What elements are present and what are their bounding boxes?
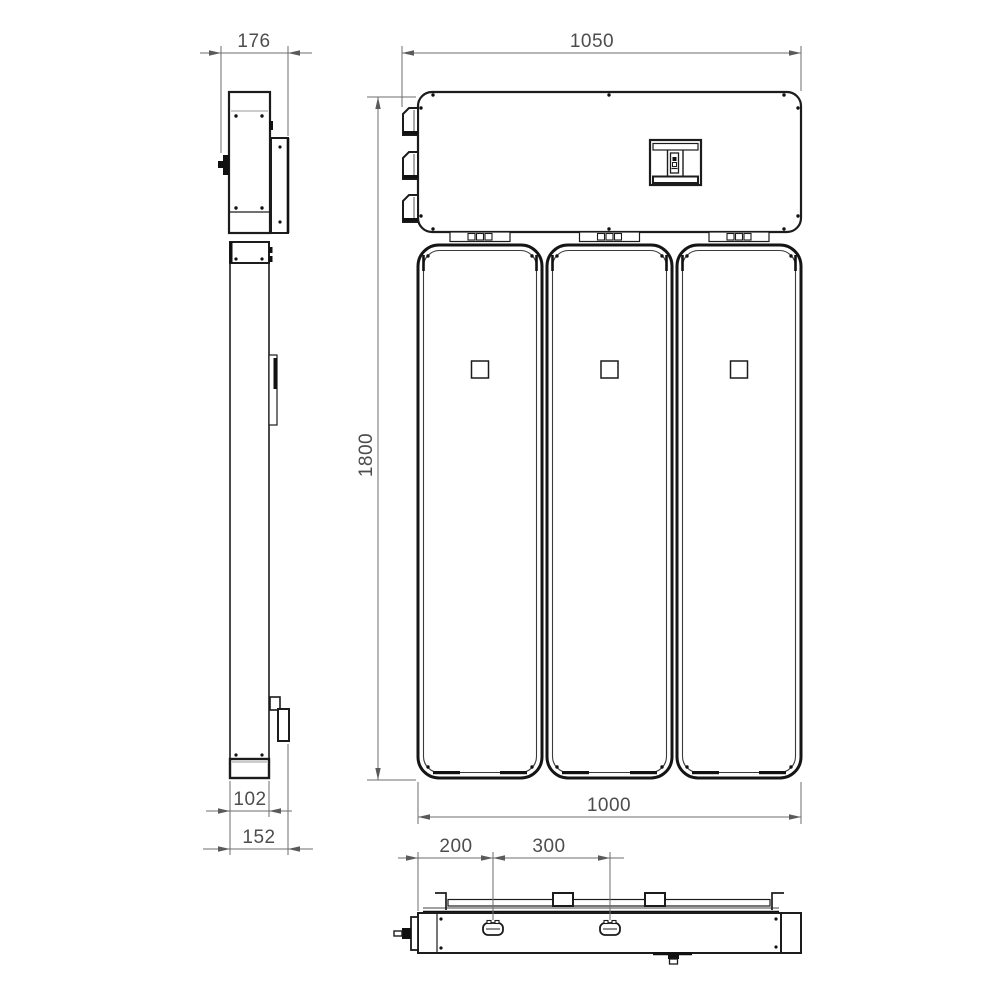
side-wall-plate [271, 138, 288, 233]
bottom-left-hook [435, 893, 446, 910]
dimension-200-300: 200 300 [398, 836, 624, 920]
dim-label-176: 176 [237, 31, 270, 52]
dim-label-200: 200 [439, 836, 472, 857]
front-control-housing [403, 92, 801, 232]
connector-3 [709, 232, 769, 242]
bottom-housing [394, 913, 801, 953]
side-panel-body [230, 263, 269, 759]
dim-label-300: 300 [532, 836, 565, 857]
heating-panel-3 [677, 245, 801, 778]
dim-label-1000: 1000 [587, 795, 631, 816]
heating-panel-1 [418, 245, 542, 778]
dim-label-152: 152 [242, 827, 275, 848]
drain-stub [653, 954, 692, 964]
hinge-tab-bottom [403, 195, 418, 222]
front-switch-panel [650, 140, 701, 185]
front-view [403, 92, 801, 778]
bottom-view [394, 893, 801, 964]
dimension-1000: 1000 [418, 782, 801, 824]
side-control-box [218, 92, 273, 233]
dim-label-102: 102 [233, 789, 266, 810]
heating-panel-2 [547, 245, 672, 778]
side-bottom-cap [230, 753, 269, 778]
valve-right [600, 921, 620, 936]
panel-connectors [450, 232, 769, 242]
connector-1 [450, 232, 510, 242]
technical-drawing: 176 1050 1800 1000 [0, 0, 1000, 1000]
connector-2 [580, 232, 640, 242]
bottom-panel-edges [423, 893, 784, 912]
valve-left [483, 921, 503, 936]
side-knob [223, 155, 229, 175]
dim-label-1050: 1050 [570, 31, 614, 52]
panel-2-badge [601, 361, 618, 378]
hinge-tab-top [403, 108, 418, 135]
panel-3-badge [731, 361, 748, 378]
side-view [218, 92, 289, 778]
panel-1-badge [472, 361, 489, 378]
side-lower-bracket [270, 697, 289, 741]
bottom-right-hook [772, 893, 784, 910]
side-inlet-stub [402, 928, 411, 939]
bottom-tab-2 [645, 893, 665, 906]
hinge-tab-middle [403, 152, 418, 179]
dim-label-1800: 1800 [356, 433, 377, 477]
drawing-canvas: 176 1050 1800 1000 [0, 0, 1000, 1000]
bottom-tab-1 [553, 893, 573, 906]
side-hanger-box [230, 242, 273, 263]
side-knob-spindle [218, 161, 223, 168]
side-mid-bracket [269, 355, 277, 425]
